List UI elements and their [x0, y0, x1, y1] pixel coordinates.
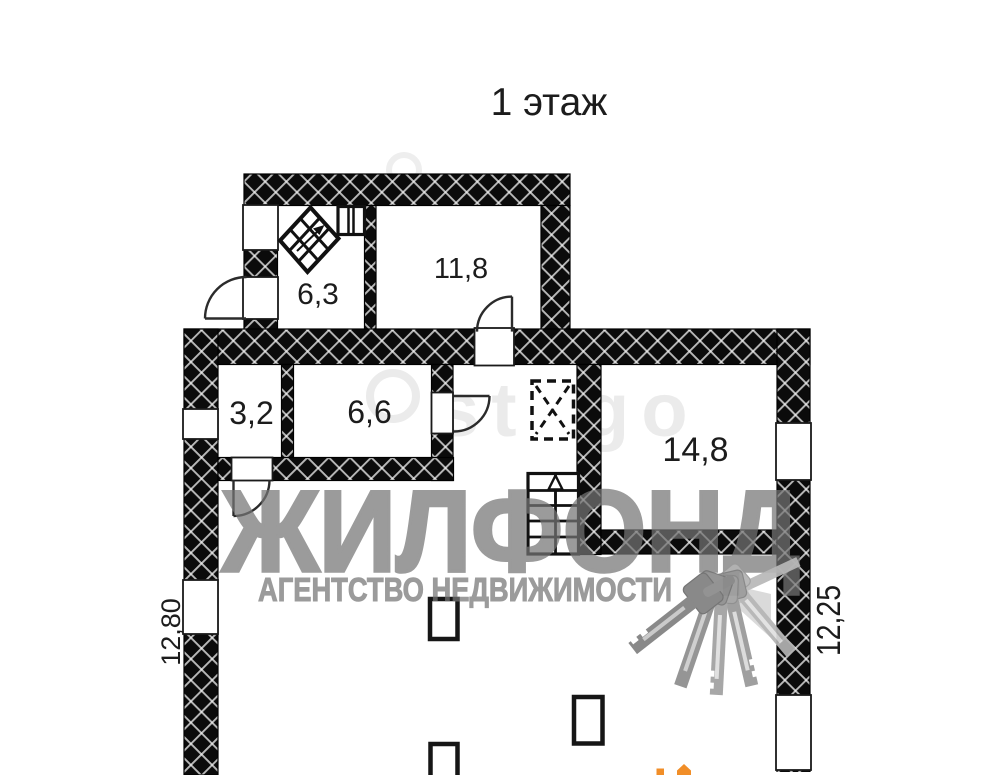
svg-text:6,6: 6,6 [347, 394, 391, 430]
svg-text:12,25: 12,25 [810, 585, 847, 656]
svg-text:11,8: 11,8 [434, 253, 488, 285]
svg-text:6,3: 6,3 [297, 278, 339, 311]
svg-text:3,2: 3,2 [229, 395, 273, 431]
svg-text:12,80: 12,80 [156, 598, 186, 666]
svg-text:1 этаж: 1 этаж [491, 81, 608, 124]
svg-text:АГЕНТСТВО НЕДВИЖИМОСТИ: АГЕНТСТВО НЕДВИЖИМОСТИ [258, 571, 672, 608]
svg-text:14,8: 14,8 [662, 431, 728, 469]
